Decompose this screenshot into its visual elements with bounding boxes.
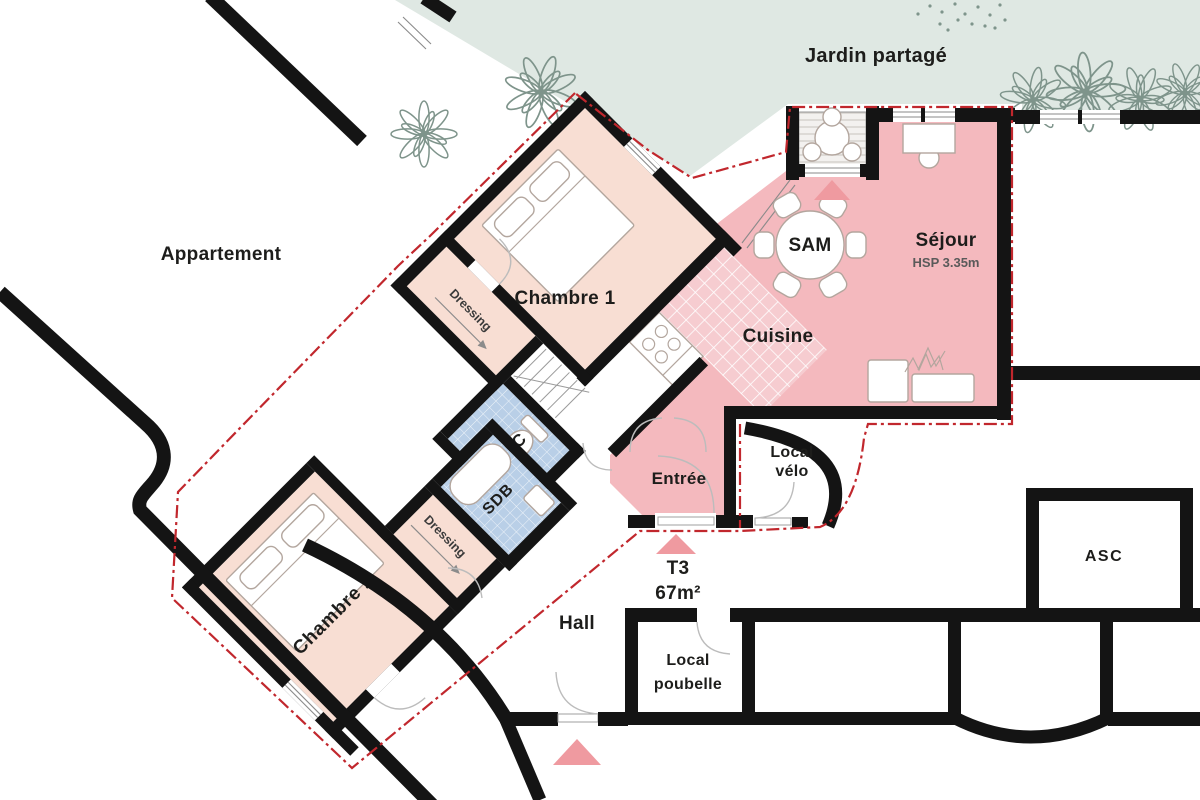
appartement-label: Appartement [161,244,282,265]
poubelle-door-arc [697,622,730,654]
sejour-label: Séjour [916,230,977,251]
cuisine-label: Cuisine [743,326,814,347]
chambre-1-label: Chambre 1 [515,288,616,309]
velo-label-1: Local [770,444,813,461]
hall-label: Hall [559,613,595,634]
velo-door-icon [755,518,791,525]
poubelle-label-1: Local [666,652,709,669]
curved-room-wall [955,718,1108,737]
velo-label-2: vélo [775,463,808,480]
building-entrance-triangle-icon [553,739,601,765]
unit-type-label: T3 [667,558,690,579]
entree-label: Entrée [652,469,707,488]
window-top-right-icon [1040,110,1120,124]
window-sejour-icon [893,108,955,122]
balcony-window-icon [799,164,866,177]
hsp-label: HSP 3.35m [913,255,980,270]
unit-area-label: 67m² [655,583,701,604]
sam-label: SAM [788,235,831,256]
poubelle-label-2: poubelle [654,676,722,693]
balcony [799,108,866,177]
floor-plan: Jardin partagé [0,0,1200,800]
apartment-entrance-triangle-icon [656,534,696,554]
building-door-icon [556,672,600,722]
garden-label: Jardin partagé [805,45,947,67]
asc-label: ASC [1085,548,1123,565]
